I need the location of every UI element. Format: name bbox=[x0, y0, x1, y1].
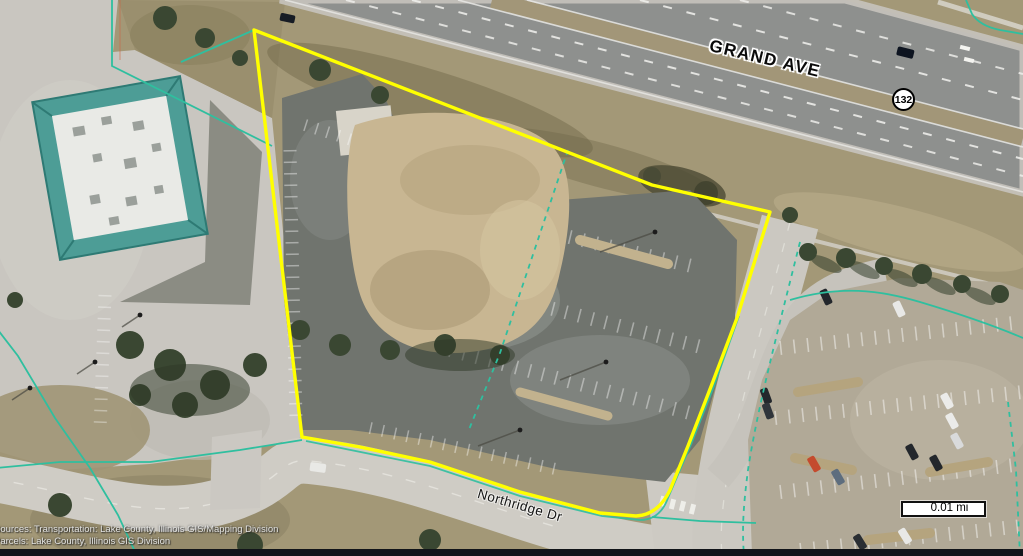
dirt-area bbox=[347, 113, 569, 353]
route-132-shield: 132 bbox=[892, 88, 915, 111]
aerial-imagery bbox=[0, 0, 1023, 556]
bottom-border-strip bbox=[0, 549, 1023, 556]
map-attribution: Sources: Transportation: Lake County, Il… bbox=[0, 524, 278, 547]
attribution-line-1: Sources: Transportation: Lake County, Il… bbox=[0, 524, 278, 536]
route-132-number: 132 bbox=[895, 94, 913, 106]
scale-bar: 0.01 mi bbox=[901, 501, 986, 517]
scale-bar-text: 0.01 mi bbox=[931, 503, 969, 515]
aerial-map[interactable]: GRAND AVE 132 Northridge Dr 0.01 mi Sour… bbox=[0, 0, 1023, 556]
attribution-line-2: Parcels: Lake County, Illinois GIS Divis… bbox=[0, 536, 278, 548]
